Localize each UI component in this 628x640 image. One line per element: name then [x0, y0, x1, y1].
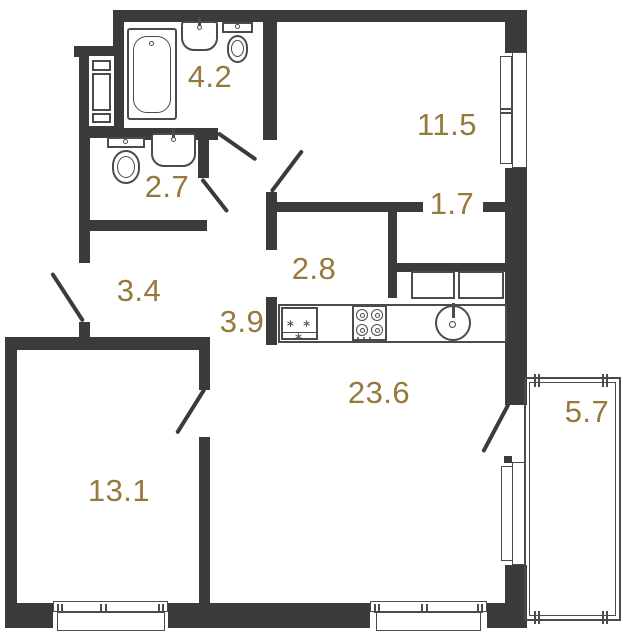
toilet-tank-dot [123, 139, 128, 144]
room-label-bedroom: 11.5 [417, 107, 477, 143]
room-label-hallway: 3.4 [117, 273, 162, 309]
living-window-sill [376, 612, 481, 631]
wall-left-upper [79, 138, 90, 263]
fridge-line [283, 332, 316, 334]
glazing-tick [606, 611, 608, 624]
wall-niche-top-right [483, 202, 505, 212]
bedroom-window-mullion [500, 108, 512, 110]
wardrobe [411, 271, 455, 299]
kitchen-sink-drain [449, 321, 456, 328]
bathroom-door-leaf [217, 131, 258, 161]
glazing-tick [538, 611, 540, 624]
bedroom-window-sash [500, 56, 512, 164]
entry-door-leaf [51, 272, 86, 323]
wall-bedroom-left-b [266, 297, 277, 345]
bathtub-inner [133, 36, 171, 113]
wall-niche-top-left [277, 202, 423, 212]
wall-top [113, 10, 527, 22]
glazing-tick [602, 374, 604, 387]
wc-door-leaf [201, 178, 230, 213]
wall-bath-right [263, 22, 277, 140]
living-window [370, 601, 487, 612]
washbasin-tap-dot [171, 137, 176, 142]
room-label-wardrobe-niche: 1.7 [430, 186, 475, 222]
wall-room13-right-upper [199, 350, 210, 390]
room-label-kitchen-niche: 2.8 [292, 251, 337, 287]
balcony-frame-mark [504, 456, 512, 463]
wall-right-mid [505, 168, 527, 405]
room-label-bedroom-2: 13.1 [88, 473, 150, 509]
stove-burner-inner [375, 313, 380, 318]
wall-bedroom-left-a [266, 192, 277, 250]
room-label-living-kitchen: 23.6 [348, 375, 410, 411]
wall-room13-top [5, 337, 210, 350]
glazing-tick [534, 374, 536, 387]
wall-left-lower [5, 337, 17, 603]
shaft-segment [92, 113, 111, 123]
room13-window-sill [57, 612, 165, 631]
window-tick [481, 604, 483, 613]
fridge: ∗ ∗ ∗ [281, 307, 318, 340]
glazing-tick [538, 374, 540, 387]
washbasin-tap-dot [197, 25, 202, 30]
wall-bottom-left [5, 603, 53, 628]
balcony-window-sash [501, 466, 513, 561]
wall-bottom-right [487, 603, 527, 628]
wall-bottom-mid [168, 603, 370, 628]
balcony-door-leaf [482, 403, 511, 453]
glazing-tick [606, 374, 608, 387]
wall-hallway-top [79, 220, 207, 231]
wall-entry-jamb [79, 322, 90, 337]
room-label-bathroom: 4.2 [188, 59, 233, 95]
wall-room13-right-lower [199, 437, 210, 603]
wall-niche-left [388, 202, 397, 298]
glazing-tick [602, 611, 604, 624]
shaft-segment [92, 73, 111, 111]
toilet-bowl-inner [117, 156, 135, 178]
bathtub-drain [149, 41, 154, 46]
room-label-balcony: 5.7 [565, 394, 610, 430]
wardrobe [458, 271, 504, 299]
fridge-symbol: ∗ ∗ ∗ [283, 317, 316, 343]
wall-wc-right-stub [198, 138, 209, 178]
toilet-bowl-inner [231, 40, 244, 57]
stove-dot [363, 337, 365, 339]
stove-burner-inner [375, 328, 380, 333]
bedroom-door-leaf [270, 149, 304, 193]
toilet-tank-dot [235, 24, 240, 29]
wall-right-upper [505, 10, 527, 53]
bedroom-window-frame [512, 52, 527, 168]
bedroom-window-mullion [500, 112, 512, 114]
room13-door-leaf [175, 388, 206, 435]
kitchen-sink-tap [452, 303, 455, 318]
room-label-corridor: 3.9 [220, 304, 265, 340]
room-label-wc: 2.7 [145, 169, 190, 205]
floor-plan: ∗ ∗ ∗ 4.2 11.5 2.7 1.7 2.8 3.4 3.9 23.6 … [0, 0, 628, 640]
stove-dot [357, 337, 359, 339]
glazing-tick [534, 611, 536, 624]
stove-burner-inner [360, 328, 365, 333]
room13-window [53, 601, 168, 612]
stove-dot [369, 337, 371, 339]
shaft-segment [92, 60, 111, 71]
stove-burner-inner [360, 313, 365, 318]
